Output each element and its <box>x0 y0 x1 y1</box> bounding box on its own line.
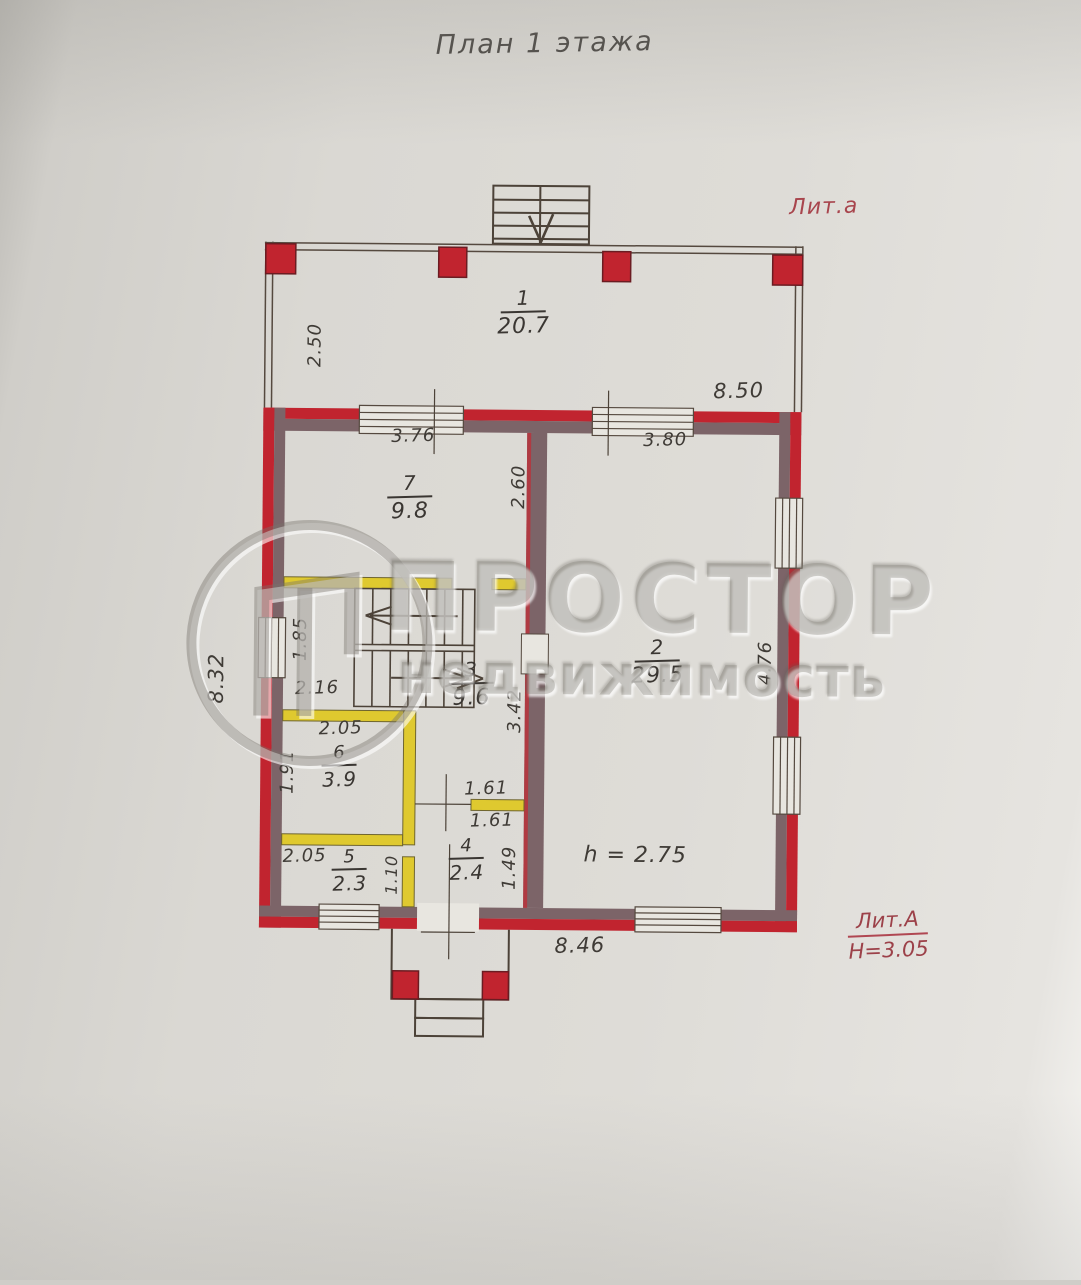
window-bottom-left <box>319 904 379 930</box>
dim-opening-bottom: 1.61 <box>470 810 515 832</box>
dim-room7-side: 2.60 <box>508 465 529 509</box>
page-title: План 1 этажа <box>435 26 654 61</box>
watermark-subtitle-text: недвижимость <box>397 647 886 707</box>
litera-top-label: Лит.а <box>789 194 859 221</box>
room-label-5: 5 2.3 <box>331 848 368 895</box>
exterior-door-opening <box>417 903 479 932</box>
dim-window-left: 3.76 <box>391 425 436 447</box>
top-entrance-stairs <box>493 186 590 245</box>
dim-window-right: 3.80 <box>643 429 688 451</box>
dim-opening-top: 1.61 <box>464 777 509 799</box>
window-right-lower <box>773 737 801 814</box>
dim-room5-width: 2.05 <box>282 845 327 867</box>
room-label-4: 4 2.4 <box>448 837 485 884</box>
room-label-1: 1 20.7 <box>496 287 550 340</box>
dim-room5-depth: 1.10 <box>382 855 401 895</box>
ceiling-height-note: h = 2.75 <box>583 842 687 868</box>
dim-veranda-height: 2.50 <box>304 323 325 367</box>
porch-pillar-left <box>392 971 418 999</box>
porch-pillar-right <box>482 972 508 1000</box>
litera-height: Н=3.05 <box>848 934 929 963</box>
litera-name: Лит.А <box>847 906 928 937</box>
bottom-porch <box>391 929 509 1037</box>
dim-room4-depth: 1.49 <box>499 846 520 890</box>
floor-plan: План 1 этажа Лит.а 1 20.7 7 9.8 2 29.5 3… <box>0 0 1081 1285</box>
dim-bottom-wall: 8.46 <box>554 933 605 958</box>
dim-veranda-width: 8.50 <box>713 378 764 403</box>
window-bottom-right <box>635 907 721 933</box>
litera-bottom-label: Лит.А Н=3.05 <box>847 906 929 963</box>
watermark-brand-text: ПРОСТОР <box>382 551 940 651</box>
